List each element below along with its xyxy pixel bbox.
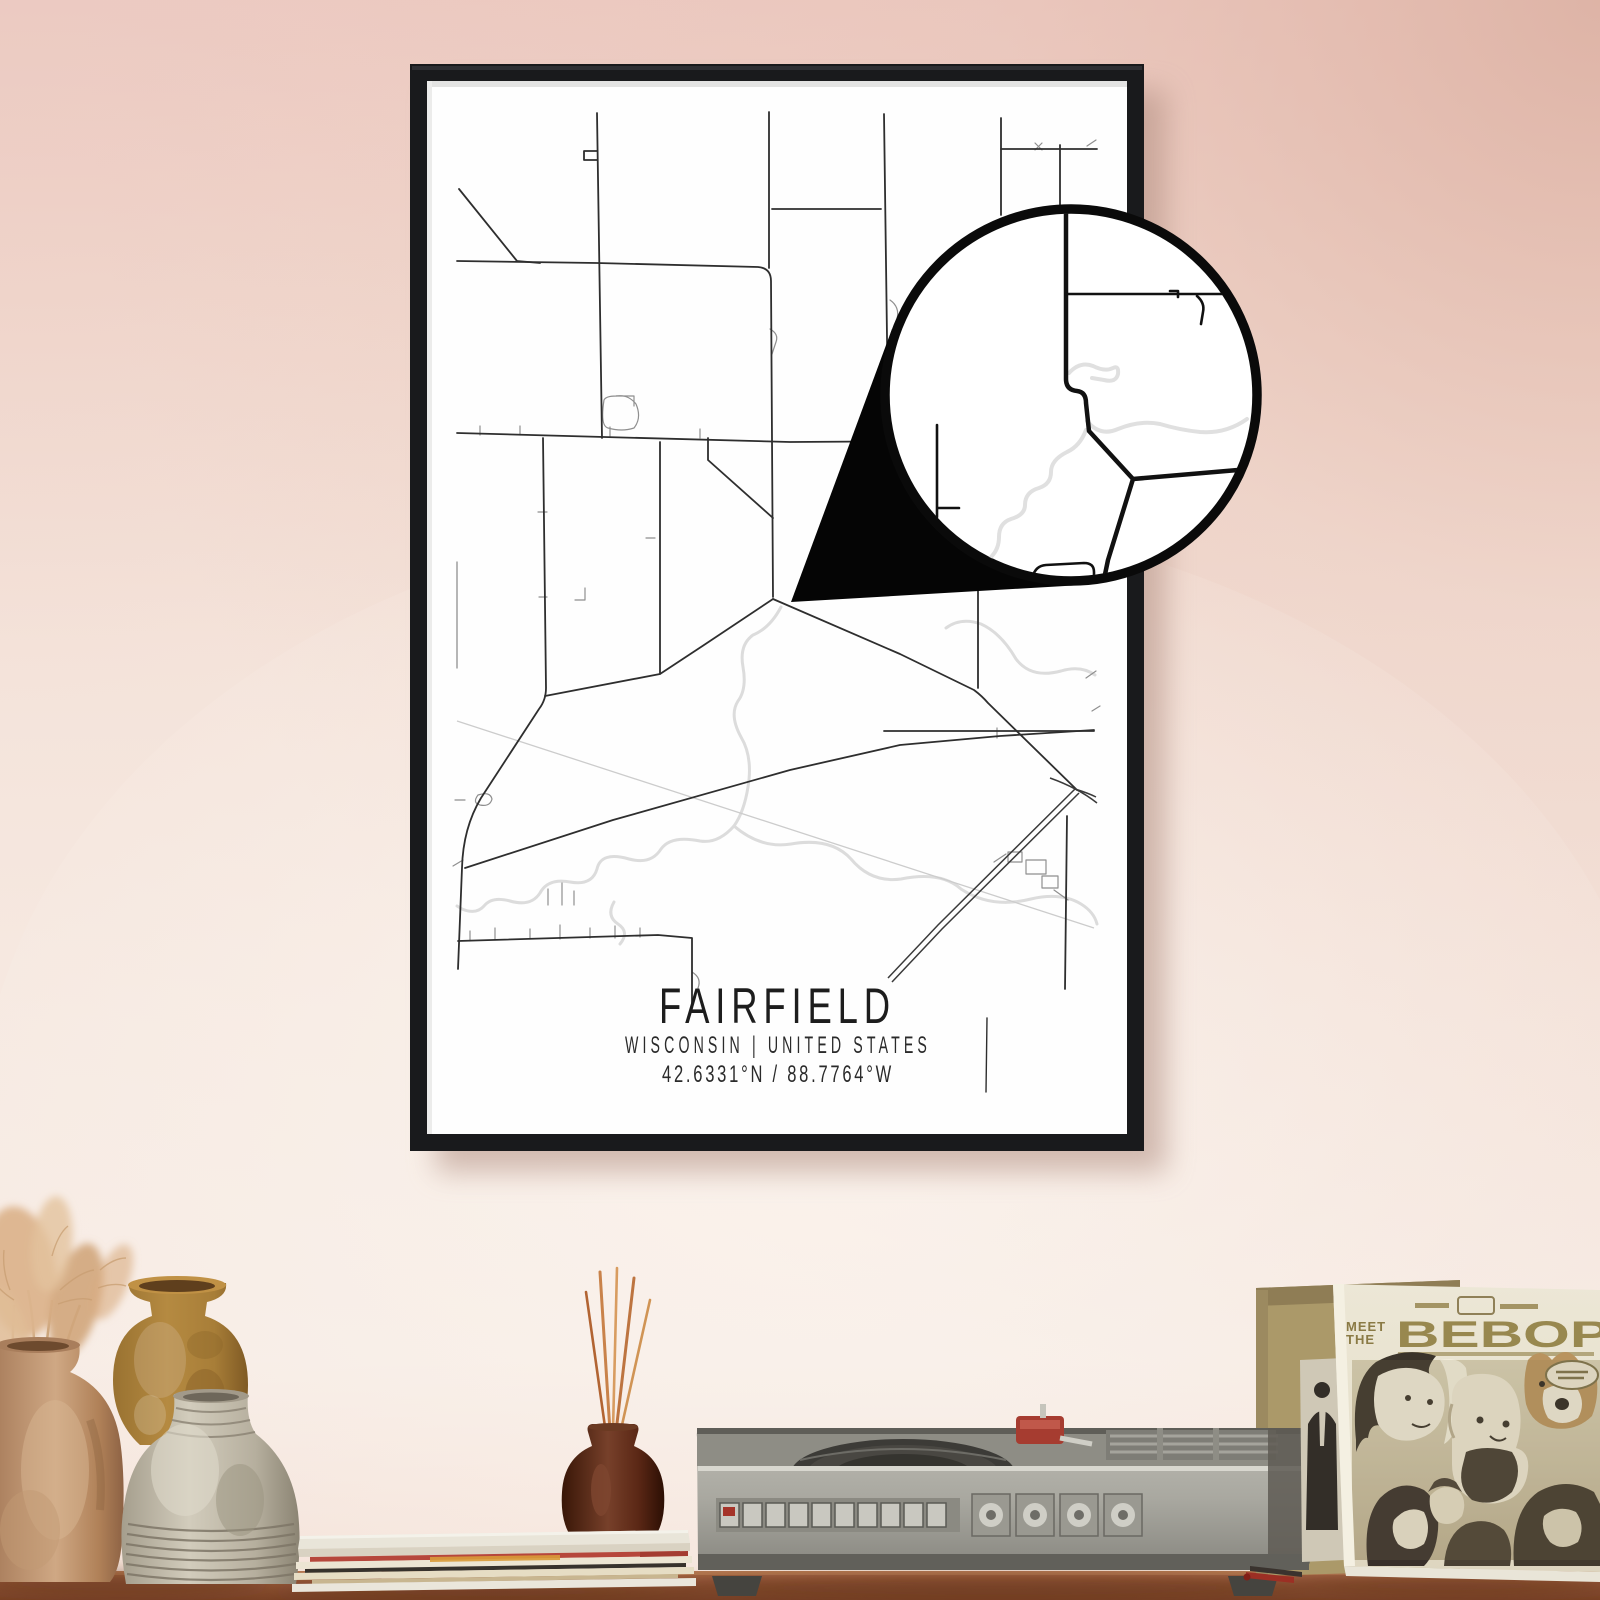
svg-text:WISCONSIN | UNITED STATES: WISCONSIN | UNITED STATES [625, 1032, 931, 1059]
svg-text:THE: THE [1346, 1332, 1375, 1347]
svg-text:BEBOP: BEBOP [1396, 1314, 1600, 1355]
svg-text:42.6331°N / 88.7764°W: 42.6331°N / 88.7764°W [662, 1061, 894, 1088]
svg-text:FAIRFIELD: FAIRFIELD [659, 978, 896, 1034]
